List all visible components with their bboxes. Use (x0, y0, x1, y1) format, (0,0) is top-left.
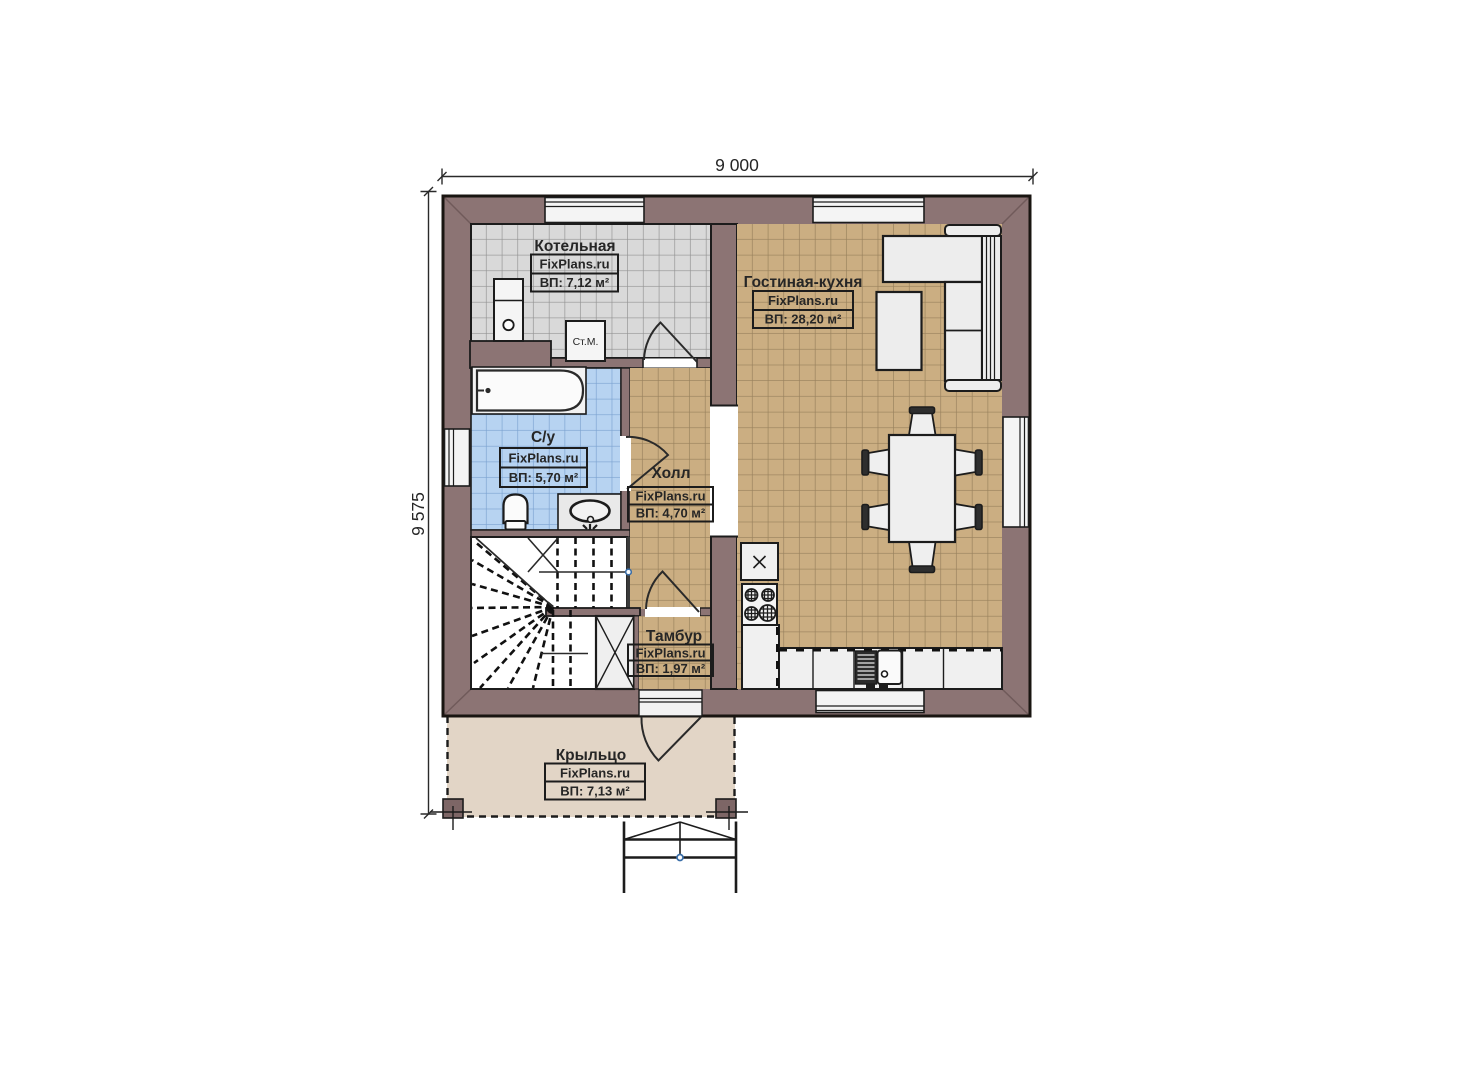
svg-text:FixPlans.ru: FixPlans.ru (768, 293, 838, 308)
svg-text:Гостиная-кухня: Гостиная-кухня (744, 274, 863, 291)
svg-text:FixPlans.ru: FixPlans.ru (508, 451, 578, 466)
svg-text:FixPlans.ru: FixPlans.ru (635, 646, 705, 661)
svg-text:ВП: 4,70 м²: ВП: 4,70 м² (636, 506, 706, 521)
svg-text:ВП: 7,12 м²: ВП: 7,12 м² (540, 275, 610, 290)
svg-text:ВП: 5,70 м²: ВП: 5,70 м² (509, 470, 579, 485)
svg-text:9 000: 9 000 (715, 155, 759, 175)
svg-text:С/у: С/у (531, 429, 556, 446)
svg-text:ВП: 28,20 м²: ВП: 28,20 м² (765, 312, 842, 327)
svg-text:9 575: 9 575 (408, 492, 428, 536)
svg-text:Холл: Холл (652, 465, 691, 482)
svg-text:Крыльцо: Крыльцо (556, 747, 627, 764)
svg-text:FixPlans.ru: FixPlans.ru (539, 257, 609, 272)
svg-text:Ст.М.: Ст.М. (573, 336, 599, 348)
svg-text:FixPlans.ru: FixPlans.ru (635, 489, 705, 504)
svg-text:Котельная: Котельная (534, 238, 615, 255)
svg-text:ВП: 1,97 м²: ВП: 1,97 м² (636, 661, 706, 676)
svg-text:Тамбур: Тамбур (646, 628, 702, 645)
svg-text:ВП: 7,13 м²: ВП: 7,13 м² (560, 784, 630, 799)
svg-text:FixPlans.ru: FixPlans.ru (560, 766, 630, 781)
